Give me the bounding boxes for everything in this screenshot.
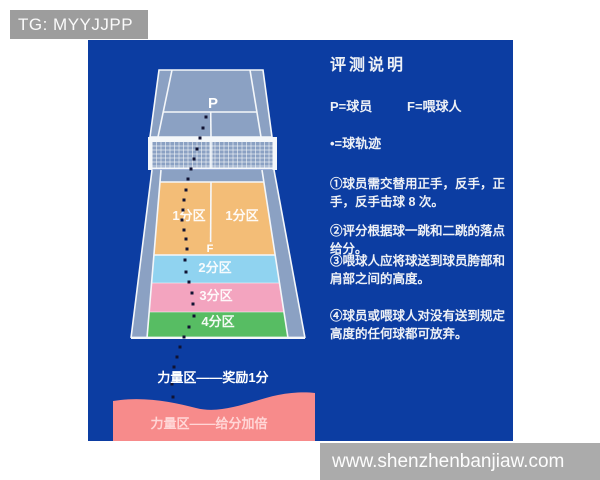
net-center-strap [210,142,213,168]
trajectory-definition: •=球轨迹 [330,133,381,152]
zone-1-right-label: 1分区 [225,208,258,223]
far-court: P [150,70,272,137]
near-court: 1分区 1分区 2分区 3分区 4分区 F [131,170,305,338]
power-bonus-label: 力量区——奖励1分 [157,370,268,385]
evaluation-diagram-panel: P [88,40,513,441]
watermark: www.shenzhenbanjiaw.com [320,443,600,480]
power-bonus-zone: 力量区——奖励1分 [157,370,268,385]
rule-4: ④球员或喂球人对没有送到规定高度的任何球都可放弃。 [330,308,506,344]
player-definition: P=球员 [330,99,372,114]
tag-label: TG: MYYJJPP [10,10,148,39]
net [148,137,277,170]
legend-title: 评测说明 [330,51,406,75]
player-position-label: P [208,95,218,112]
net-post-left [148,137,153,170]
power-double-label: 力量区——给分加倍 [150,416,267,431]
net-post-right [273,137,278,170]
zone-2-label: 2分区 [198,260,231,275]
rule-3: ③喂球人应将球送到球员胯部和肩部之间的高度。 [330,253,506,289]
legend-definitions: P=球员 F=喂球人 [330,96,510,115]
net-top-band [148,137,277,142]
rule-1: ①球员需交替用正手，反手，正手，反手击球 8 次。 [330,176,506,212]
feeder-definition: F=喂球人 [407,96,462,115]
feeder-position-label: F [207,243,214,255]
page: TG: MYYJJPP P [0,0,600,480]
zone-1-left-label: 1分区 [172,208,205,223]
zone-3-label: 3分区 [199,288,232,303]
zone-4-label: 4分区 [201,314,234,329]
